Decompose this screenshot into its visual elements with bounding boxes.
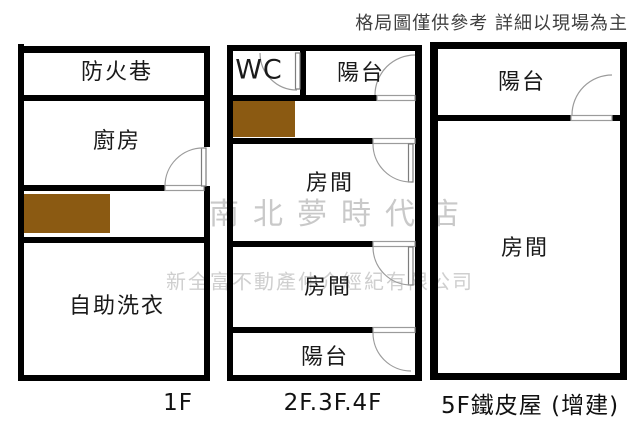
door-leaf xyxy=(202,148,207,186)
door-leaf xyxy=(296,53,301,89)
door-room1 xyxy=(373,139,415,183)
door-leaf xyxy=(409,247,414,285)
room-label-balcony-top: 陽台 xyxy=(337,55,385,87)
door-balcony-bottom xyxy=(373,328,415,372)
door-threshold xyxy=(377,96,415,101)
floor-label-5f: 5F鐵皮屋 (增建) xyxy=(441,386,619,420)
room-label-room2: 房間 xyxy=(304,269,352,301)
room-label-room-5f: 房間 xyxy=(501,230,549,262)
floor-label-1f: 1F xyxy=(163,390,193,416)
disclaimer-text: 格局圖僅供參考 詳細以現場為主 xyxy=(355,9,628,35)
door-swing-arc xyxy=(373,247,411,285)
door-threshold xyxy=(571,116,612,121)
door-threshold xyxy=(373,139,415,144)
floor-label-2f3f4f: 2F.3F.4F xyxy=(284,390,383,416)
door-threshold xyxy=(373,242,415,247)
door-swing-arc xyxy=(572,75,612,115)
door-balcony-5f xyxy=(571,75,612,121)
door-room2 xyxy=(373,242,415,286)
room-label-room1: 房間 xyxy=(306,165,354,197)
room-label-laundry: 自助洗衣 xyxy=(69,288,165,320)
room-label-fire-lane: 防火巷 xyxy=(81,54,153,86)
door-swing-arc xyxy=(373,144,411,182)
door-swing-arc xyxy=(373,333,411,371)
door-leaf xyxy=(409,144,414,182)
room-label-kitchen: 廚房 xyxy=(93,123,141,155)
door-swing-arc xyxy=(165,148,203,186)
room-label-wc: WC xyxy=(235,55,283,86)
door-threshold xyxy=(373,328,415,333)
staircase-block-1f xyxy=(24,194,110,233)
room-label-balcony-bottom: 陽台 xyxy=(301,339,349,371)
room-label-balcony-5f: 陽台 xyxy=(498,64,546,96)
door-kitchen xyxy=(165,148,206,191)
floorplan-image: 格局圖僅供參考 詳細以現場為主 南北夢時代店 新全富不動產仲介經紀有限公司 xyxy=(0,0,640,429)
door-threshold xyxy=(165,186,204,191)
staircase-block-2f xyxy=(233,101,295,137)
